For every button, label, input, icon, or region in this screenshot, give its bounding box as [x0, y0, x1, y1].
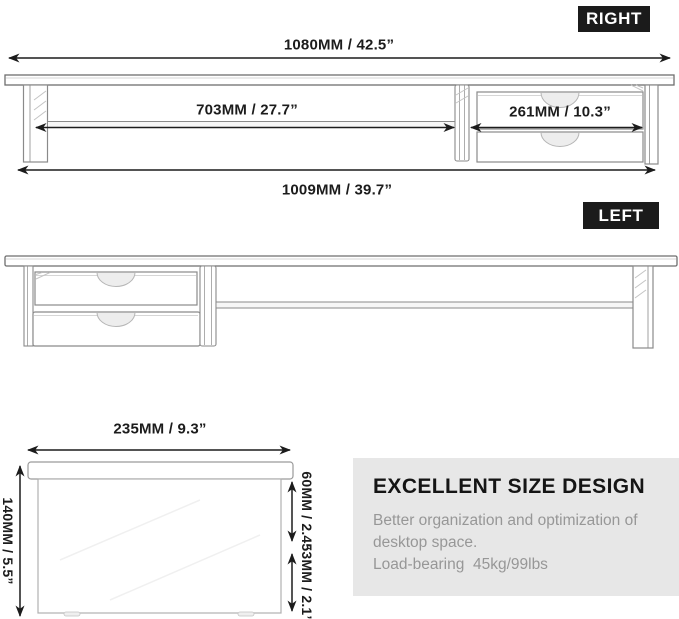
upper-drawer [35, 272, 197, 305]
drawer-unit [33, 272, 200, 346]
right-view-badge: RIGHT [578, 6, 650, 32]
left-view-drawing [0, 252, 679, 352]
left-leg [24, 85, 48, 162]
middle-shelf [216, 302, 633, 308]
lower-drawer [33, 312, 200, 346]
dim-label-1080: 1080MM / 42.5” [284, 37, 394, 54]
lower-drawer [477, 132, 643, 162]
dim-label-1009: 1009MM / 39.7” [282, 182, 392, 199]
divider-post [200, 266, 216, 346]
info-line-2: desktop space. [373, 532, 659, 554]
info-line-3: Load-bearing 45kg/99lbs [373, 554, 659, 576]
info-box: EXCELLENT SIZE DESIGN Better organizatio… [353, 458, 679, 596]
top-board [5, 256, 677, 266]
dim-label-53: 53MM / 2.1” [299, 543, 315, 619]
divider-post [455, 85, 469, 161]
side-view-drawing [0, 440, 340, 619]
side-panel [38, 479, 281, 613]
product-dimension-diagram: RIGHT [0, 0, 679, 619]
dim-label-140: 140MM / 5.5” [0, 497, 16, 584]
left-view-badge: LEFT [583, 202, 659, 229]
top-board [28, 462, 293, 479]
info-box-title: EXCELLENT SIZE DESIGN [373, 475, 659, 499]
info-line-1: Better organization and optimization of [373, 510, 659, 532]
info-box-body: Better organization and optimization of … [373, 510, 659, 576]
dim-label-60: 60MM / 2.4” [299, 471, 315, 550]
dim-label-703: 703MM / 27.7” [196, 102, 298, 119]
middle-shelf [48, 122, 456, 128]
left-leg [24, 266, 33, 346]
dim-label-261: 261MM / 10.3” [509, 104, 611, 121]
top-board [5, 75, 674, 85]
dim-label-235: 235MM / 9.3” [113, 421, 206, 438]
right-leg [633, 266, 653, 348]
